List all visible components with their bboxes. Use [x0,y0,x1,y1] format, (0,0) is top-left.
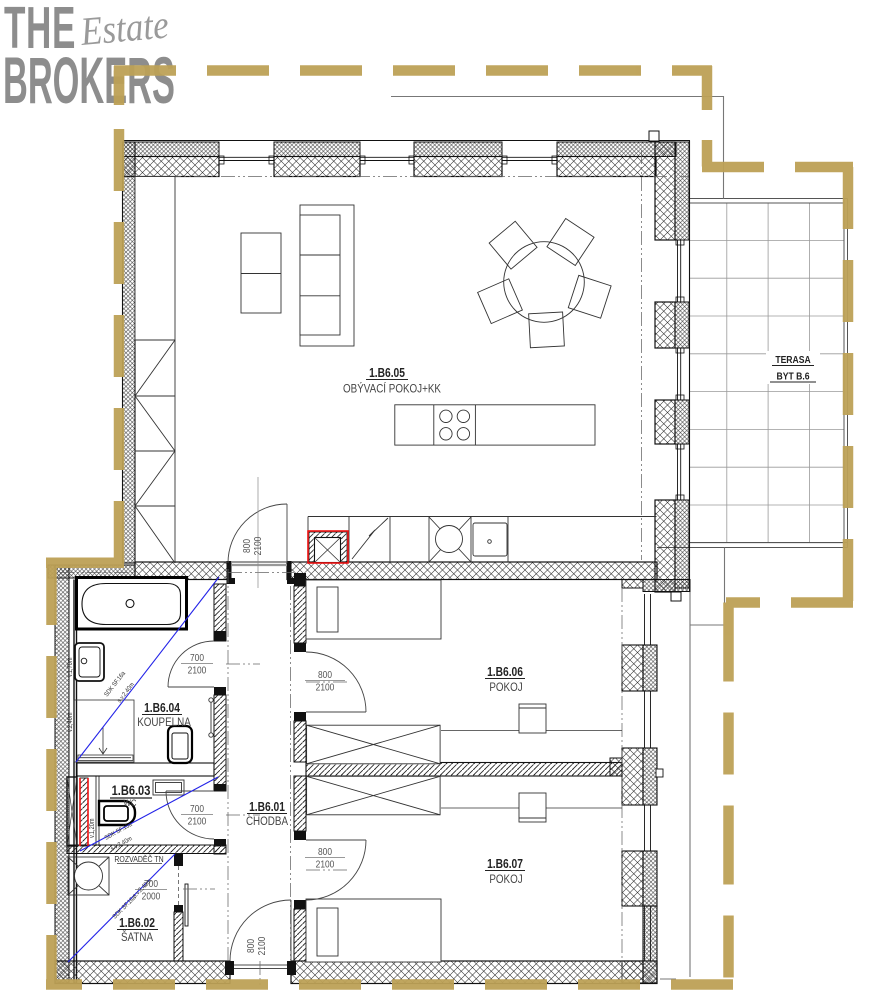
svg-text:1.B6.01: 1.B6.01 [249,801,285,814]
svg-text:1.B6.02: 1.B6.02 [119,917,155,930]
svg-text:2100: 2100 [316,859,335,871]
svg-text:1.B6.06: 1.B6.06 [487,666,523,679]
svg-text:BYT B.6: BYT B.6 [777,371,810,383]
svg-text:POKOJ: POKOJ [489,873,522,886]
svg-text:OBÝVACÍ POKOJ+KK: OBÝVACÍ POKOJ+KK [343,382,442,396]
svg-text:POKOJ: POKOJ [489,681,522,694]
svg-text:2100: 2100 [256,937,268,956]
svg-text:2100: 2100 [188,816,207,828]
svg-text:KOUPELNA: KOUPELNA [137,716,191,729]
svg-text:800: 800 [318,846,332,858]
svg-text:700: 700 [190,803,204,815]
svg-text:v.2,40m: v.2,40m [66,713,74,732]
svg-text:WC: WC [124,797,137,808]
svg-text:v.1,20m: v.1,20m [88,819,96,838]
svg-text:s.v.2,40m: s.v.2,40m [117,682,137,704]
svg-text:800: 800 [318,669,332,681]
svg-text:1.B6.05: 1.B6.05 [369,367,405,380]
svg-text:1.B6.03: 1.B6.03 [112,783,151,798]
svg-text:ŠATNA: ŠATNA [121,930,154,944]
svg-text:1.B6.07: 1.B6.07 [487,858,523,871]
svg-text:2100: 2100 [316,682,335,694]
svg-text:TERASA: TERASA [775,354,810,366]
svg-text:2100: 2100 [252,537,264,556]
svg-text:v.1,70m: v.1,70m [66,658,74,677]
svg-text:CHODBA: CHODBA [246,815,289,828]
svg-text:1.B6.04: 1.B6.04 [144,702,180,715]
svg-text:2100: 2100 [188,665,207,677]
svg-text:ROZVADĚČ TN: ROZVADĚČ TN [114,854,163,864]
svg-text:2000: 2000 [142,891,161,903]
svg-text:700: 700 [190,652,204,664]
svg-text:BROKERS: BROKERS [3,44,175,118]
